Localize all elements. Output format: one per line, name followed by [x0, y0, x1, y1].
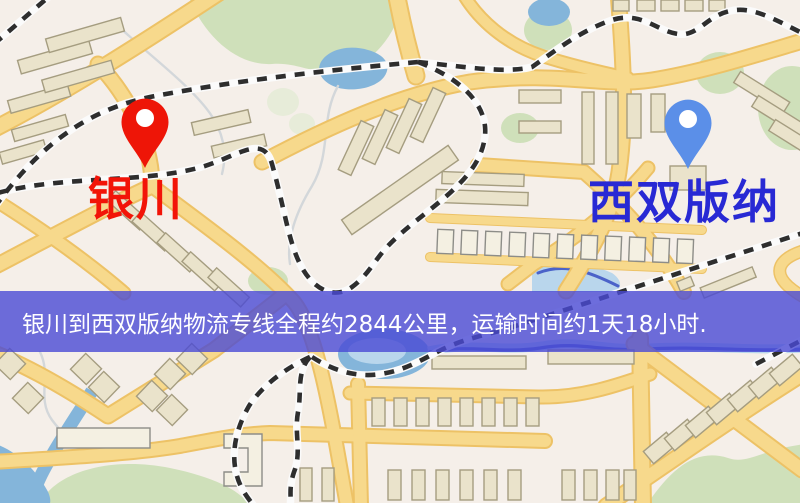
route-info-text: 银川到西双版纳物流专线全程约2844公里，运输时间约1天18小时. [22, 305, 707, 339]
origin-label: 银川 [88, 176, 184, 222]
map-canvas [0, 0, 800, 503]
route-info-banner: 银川到西双版纳物流专线全程约2844公里，运输时间约1天18小时. [0, 291, 800, 352]
map-view[interactable]: 银川 西双版纳 银川到西双版纳物流专线全程约2844公里，运输时间约1天18小时… [0, 0, 800, 503]
destination-label: 西双版纳 [588, 179, 780, 225]
